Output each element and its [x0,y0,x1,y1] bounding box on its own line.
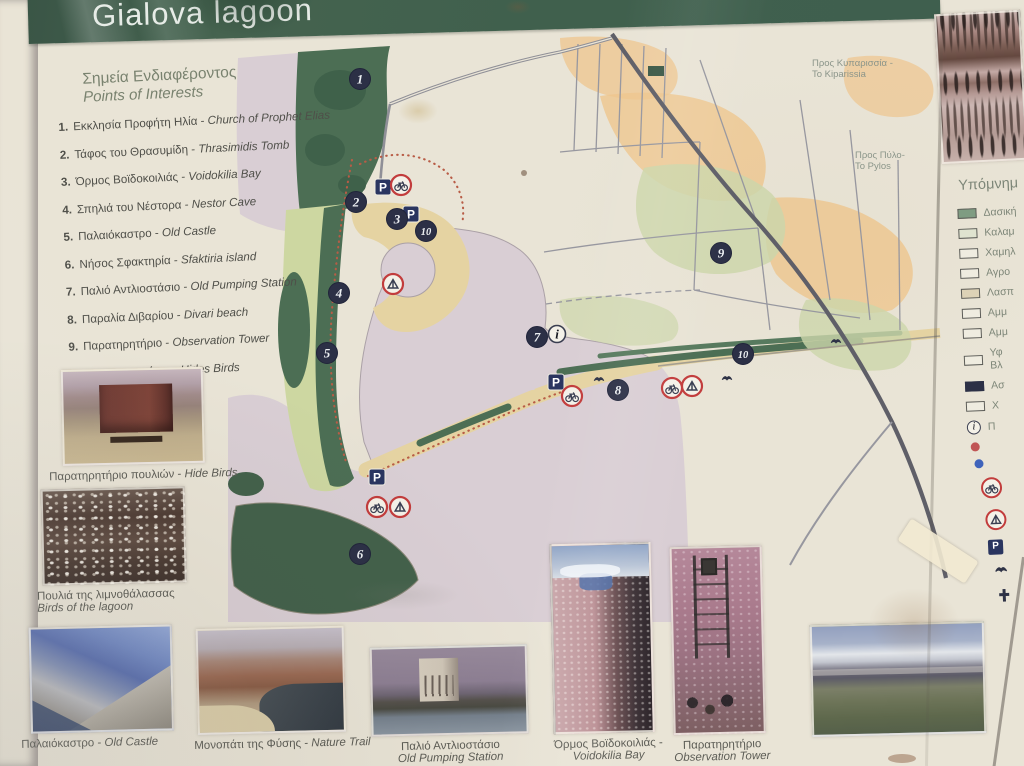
poi-item: 7.Παλιό Αντλιοστάσιο - Old Pumping Stati… [66,270,406,298]
poi-item-number: 5. [63,230,73,243]
legend-label-line: Υφ [989,347,1002,360]
figure-landscape [810,621,986,737]
parking-icon: P [548,374,564,390]
legend-label: Χ [992,399,1000,411]
caption-pumping-station: Παλιό Αντλιοστάσιο Old Pumping Station [372,738,530,766]
map-marker-8: 8 [608,380,629,401]
poi-item: 8.Παραλία Διβαρίου - Divari beach [67,298,407,326]
svg-text:8: 8 [615,383,622,398]
poi-item-number: 1. [58,121,68,134]
poi-item: 2.Τάφος του Θρασυμίδη - Thrasimidis Tomb [59,133,399,161]
svg-text:P: P [552,376,560,390]
legend-item-swatch: Αγρο [960,263,1024,280]
legend-item-info: iΠ [967,415,1024,434]
bike-icon [979,475,1004,500]
svg-text:P: P [373,471,381,485]
svg-text:9: 9 [718,246,725,261]
bike-allowed-icon [367,497,387,517]
legend-item-dot [975,454,1024,468]
poi-item-number: 8. [67,313,77,326]
poi-item-greek: Νήσος Σφακτηρία - [79,253,181,271]
photo-birds-lagoon [41,486,187,585]
legend-label: Δασική [983,205,1016,218]
legend-label: Αγρο [986,266,1010,279]
caption-english: Hide Birds [184,467,237,480]
legend-swatch [958,228,977,239]
poi-item: 3.Όρμος Βοϊδοκοιλιάς - Voidokilia Bay [61,160,401,188]
church-cross-icon [996,586,1013,605]
svg-text:Προς Κυπαρισσία -: Προς Κυπαρισσία - [812,58,893,69]
poi-item-english: Voidokilia Bay [188,167,261,183]
svg-text:Προς Πύλο-: Προς Πύλο- [855,150,905,161]
poi-item-number: 4. [62,203,72,216]
caption-voidokilia: Όρμος Βοϊδοκοιλιάς - Voidokilia Bay [554,737,663,763]
tower-cabin [701,558,718,575]
poi-item-english: Old Castle [162,224,217,239]
information-icon: i [549,326,566,343]
legend-dot [975,459,984,468]
poi-item: 9.Παρατηρητήριο - Observation Tower [68,325,408,353]
caption-english: Old Castle [104,736,158,749]
legend-swatch [962,308,981,319]
svg-text:i: i [555,327,559,342]
poi-item-number: 3. [61,175,71,188]
tower-structure [693,555,731,659]
sign-title: Gialova lagoon [92,0,314,34]
caption-birds-lagoon: Πουλιά της λιμνοθάλασσας Birds of the la… [37,587,188,614]
poi-item-greek: Σπηλιά του Νέστορα - [77,197,192,215]
photo-nature-trail [196,626,346,735]
poi-item: 1.Εκκλησία Προφήτη Ηλία - Church of Prop… [58,106,398,134]
figure-voidokilia: Όρμος Βοϊδοκοιλιάς - Voidokilia Bay [550,542,664,763]
figure-nature-trail: Μονοπάτι της Φύσης - Nature Trail [196,625,371,752]
parking-icon: P [369,469,385,485]
photo-hide-birds [61,367,205,466]
caption-english: Nature Trail [311,736,370,749]
figure-hide-birds: Παρατηρητήριο πουλιών - Hide Birds [61,366,238,483]
poi-list: 1.Εκκλησία Προφήτη Ηλία - Church of Prop… [58,106,409,382]
legend-dot [971,442,980,451]
legend-item-swatch: Αμμ [962,303,1024,320]
photo-observation-tower [670,545,766,735]
map-marker-10: 10 [416,221,437,242]
poi-item: 6.Νήσος Σφακτηρία - Sfaktiria island [64,243,404,271]
poi-item-number: 6. [64,258,74,271]
photo-voidokilia [550,542,655,734]
legend-item-swatch: Χ [966,395,1024,412]
legend-label: Αμμ [989,326,1009,339]
poi-item-english: Observation Tower [172,332,269,349]
poi-item-greek: Εκκλησία Προφήτη Ηλία - [73,114,208,133]
figure-birds-strip [934,10,1024,164]
tent-icon [983,507,1008,532]
legend-swatch [957,208,976,219]
legend-swatch [964,355,983,366]
legend-label: Λασπ [987,286,1014,299]
poi-item-greek: Παλιό Αντλιοστάσιο - [80,280,190,298]
legend-item-swatch: Ασ [965,375,1024,392]
svg-text:10: 10 [421,227,432,238]
svg-text:10: 10 [738,350,749,361]
map-marker-10: 10 [733,344,754,365]
legend-item-swatch: Καλαμ [958,223,1024,240]
figure-old-castle: Παλαιόκαστρο - Old Castle [29,624,175,750]
poi-item-english: Old Pumping Station [190,275,297,293]
bay-glimpse [579,573,612,590]
green-field-2 [799,298,911,370]
legend-label: ΥφΒλ [989,347,1003,372]
bike-allowed-icon [562,386,582,406]
tent-allowed-icon [682,376,702,396]
poi-item-greek: Παρατηρητήριο - [83,336,173,353]
poi-item: 4.Σπηλιά του Νέστορα - Nestor Cave [62,188,402,216]
green-field-3 [560,296,679,346]
legend-item-swatch: Λασπ [961,283,1024,300]
photo-pumping-station [370,644,529,737]
legend-item-swatch: ΥφΒλ [963,343,1024,372]
svg-text:7: 7 [534,330,541,345]
legend-label: Καλαμ [984,226,1015,239]
figure-pumping-station: Παλιό Αντλιοστάσιο Old Pumping Station [370,644,530,766]
poi-item-greek: Παραλία Διβαρίου - [82,308,184,326]
poi-item-number: 2. [59,148,69,161]
legend-item-parking: P [988,535,1024,555]
map-marker-6: 6 [350,544,371,565]
map-marker-7: 7 [527,327,548,348]
map-marker-9: 9 [711,243,732,264]
points-of-interest-panel: Σημεία Ενδιαφέροντος Points of Interests… [56,57,410,396]
poi-item-number: 7. [66,285,76,298]
legend-swatch [960,268,979,279]
poi-item-greek: Τάφος του Θρασυμίδη - [74,142,198,161]
legend-item-ring-bike [979,471,1024,500]
caption-observation-tower: Παρατηρητήριο Observation Tower [674,738,771,764]
poi-item-greek: Όρμος Βοϊδοκοιλιάς - [75,170,188,188]
tent-allowed-icon [390,497,410,517]
bird-hide-icon [722,377,732,380]
poi-item-english: Divari beach [183,305,248,321]
caption-english: Observation Tower [674,750,770,764]
legend-label: Χαμηλ [985,246,1016,259]
caption-greek: Παλαιόκαστρο - [21,737,101,751]
poi-item-english: Thrasimidis Tomb [198,138,290,155]
legend-label: Αμμ [988,306,1008,319]
building-symbol [648,66,664,76]
legend-swatch [961,288,980,299]
caption-greek: Μονοπάτι της Φύσης - [194,737,308,752]
poi-item-english: Church of Prophet Elias [207,109,330,128]
poi-item: 5.Παλαιόκαστρο - Old Castle [63,215,403,243]
legend-swatch [963,328,982,339]
poi-item-number: 9. [68,340,78,353]
bike-allowed-icon [662,378,682,398]
figure-birds-lagoon: Πουλιά της λιμνοθάλασσας Birds of the la… [41,486,188,614]
legend-label-line: Βλ [990,359,1003,372]
legend-swatch [966,401,985,412]
svg-text:6: 6 [357,547,364,562]
photo-birds-strip [934,10,1024,164]
info-icon: i [967,420,982,435]
poi-item-english: Sfaktiria island [181,250,257,266]
information-sign-photo: Προς Κυπαρισσία -To KiparissiaΠρος Πύλο-… [0,0,1024,766]
bird-icon [992,562,1011,579]
legend-swatch [959,248,978,259]
legend-swatch [965,381,984,392]
legend-label: Π [988,420,996,432]
legend-item-swatch: Αμμ [963,323,1024,340]
poi-item-greek: Παλαιόκαστρο - [78,226,162,243]
legend-item-swatch: Δασική [957,203,1024,220]
legend-label: Ασ [991,379,1005,392]
poi-item-english: Nestor Cave [191,195,256,211]
parking-icon: P [988,539,1004,555]
caption-english: Voidokilia Bay [554,749,663,763]
svg-text:P: P [407,208,415,222]
figure-observation-tower: Παρατηρητήριο Observation Tower [670,545,771,764]
photo-landscape-view [810,621,986,737]
legend-item-ring-tent [983,503,1024,532]
svg-text:To Pylos: To Pylos [855,161,891,172]
photo-old-castle [29,624,174,733]
legend-item-dot [971,437,1024,451]
legend-item-swatch: Χαμηλ [959,243,1024,260]
branch-road [790,422,892,565]
svg-text:To Kiparissia: To Kiparissia [812,69,867,80]
